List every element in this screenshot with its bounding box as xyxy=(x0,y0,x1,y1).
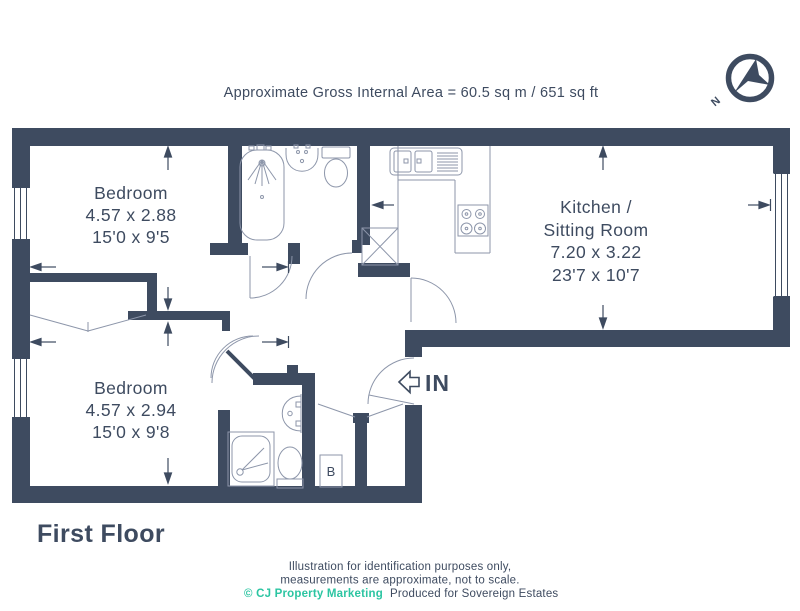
toilet-bathroom xyxy=(322,147,350,187)
floor-title: First Floor xyxy=(37,520,165,548)
bedroom-top-imperial: 15'0 x 9'5 xyxy=(92,227,170,247)
credit-marketing: © CJ Property Marketing xyxy=(244,588,383,600)
wall-middle-nub xyxy=(222,320,230,331)
disclaimer-line1: Illustration for identification purposes… xyxy=(289,561,512,573)
kitchen-imperial: 23'7 x 10'7 xyxy=(552,265,640,285)
label-bedroom-bottom: Bedroom 4.57 x 2.94 15'0 x 9'8 xyxy=(86,378,177,442)
bedroom-top-name: Bedroom xyxy=(94,183,168,203)
boiler-label: B xyxy=(327,464,336,479)
kitchen-metric: 7.20 x 3.22 xyxy=(551,242,642,262)
toilet-shower-room xyxy=(277,447,303,488)
window-bedroom-top xyxy=(12,187,30,240)
shower-room-sink xyxy=(282,394,301,433)
compass-icon: N xyxy=(709,57,771,110)
window-bedroom-bottom xyxy=(12,358,30,418)
kitchen-name-line1: Kitchen / xyxy=(560,197,632,217)
shower xyxy=(228,432,274,486)
gross-internal-area-note: Approximate Gross Internal Area = 60.5 s… xyxy=(224,85,599,101)
dim-bedroom-bottom-width xyxy=(31,336,289,348)
wall-shower-right xyxy=(302,373,315,487)
wall-bathroom-bottom-nub xyxy=(288,243,300,264)
compass-north-label: N xyxy=(709,95,723,109)
door-hallway xyxy=(306,253,352,299)
wall-kitchen-bottom xyxy=(405,330,790,347)
door-bathroom xyxy=(250,256,292,298)
floorplan-svg: Approximate Gross Internal Area = 60.5 s… xyxy=(0,0,800,611)
bedroom-bottom-metric: 4.57 x 2.94 xyxy=(86,400,177,420)
wall-closet-top xyxy=(30,273,157,282)
door-kitchen xyxy=(411,278,456,323)
wall-shower-top-nub xyxy=(287,365,298,374)
wall-bathroom-bottom-left xyxy=(210,243,248,255)
kitchen-name-line2: Sitting Room xyxy=(544,220,649,240)
label-bedroom-top: Bedroom 4.57 x 2.88 15'0 x 9'5 xyxy=(86,183,177,247)
footer: Illustration for identification purposes… xyxy=(244,561,558,600)
bedroom-bottom-imperial: 15'0 x 9'8 xyxy=(92,422,170,442)
entrance-in-text: IN xyxy=(425,370,450,396)
wall-cupboard-mid-cap xyxy=(353,413,369,423)
kitchen-sink xyxy=(390,148,462,175)
wall-top xyxy=(12,128,790,146)
bathtub xyxy=(240,145,284,240)
wall-bottom xyxy=(12,486,422,503)
hob xyxy=(458,205,488,236)
wall-kitchen-nub xyxy=(352,240,362,253)
window-kitchen xyxy=(773,173,790,297)
bedroom-top-metric: 4.57 x 2.88 xyxy=(86,205,177,225)
disclaimer-line2: measurements are approximate, not to sca… xyxy=(280,575,519,587)
door-bedroom-bottom xyxy=(212,336,259,383)
credit-producer: Produced for Sovereign Estates xyxy=(390,588,558,600)
floorplan-page: Approximate Gross Internal Area = 60.5 s… xyxy=(0,0,800,611)
bedroom-bottom-name: Bedroom xyxy=(94,378,168,398)
bathroom-sink xyxy=(286,145,318,171)
washing-machine xyxy=(362,228,398,265)
label-kitchen-sitting: Kitchen / Sitting Room 7.20 x 3.22 23'7 … xyxy=(544,197,649,285)
wall-cupboard-mid xyxy=(355,413,367,487)
wall-left xyxy=(12,128,30,503)
